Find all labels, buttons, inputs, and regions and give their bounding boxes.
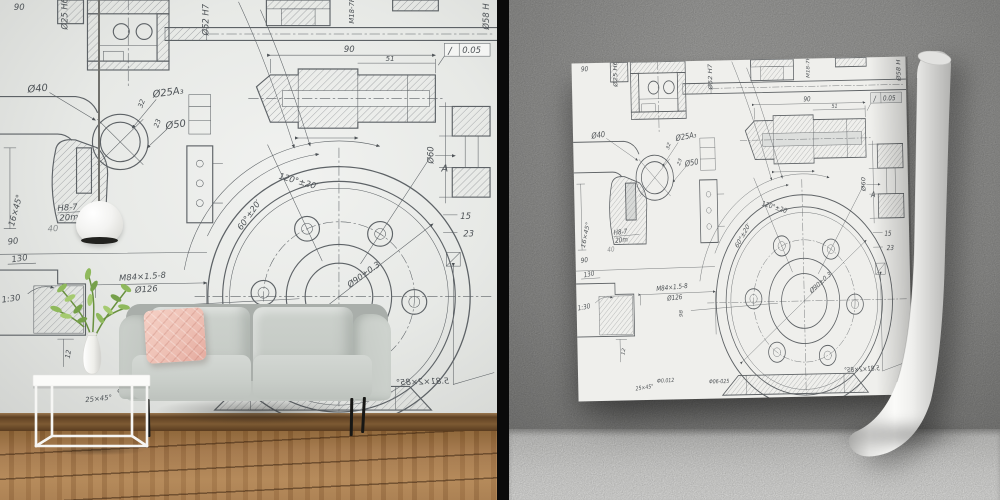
wallpaper-roll <box>839 38 999 478</box>
panel-divider <box>497 0 509 500</box>
plant-leaves <box>49 267 132 324</box>
sofa-seat-cushion-right <box>253 355 372 399</box>
coffee-table <box>28 370 158 452</box>
white-vase <box>83 332 101 374</box>
lamp-opening <box>81 237 118 244</box>
mockup-composite: 90 Ø25 H6 Ø52 H7 Ø58 H M18-7H 90 51 ∕ 0.… <box>0 0 1000 500</box>
roll-curl-shadow <box>827 418 979 452</box>
lamp-cord <box>98 0 100 204</box>
pink-pillow <box>143 307 207 364</box>
wallpaper-mockup-panel <box>509 0 1000 500</box>
plant-in-vase <box>26 252 142 378</box>
room-photo-panel <box>0 0 497 500</box>
